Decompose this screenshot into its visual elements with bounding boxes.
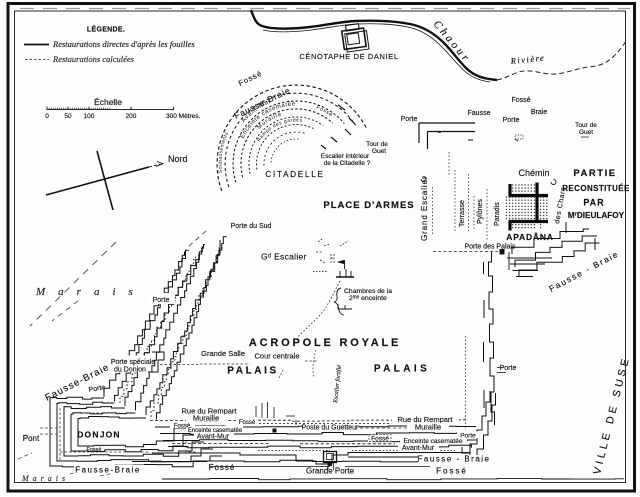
- svg-text:Restaurations directes d'après: Restaurations directes d'après les fouil…: [52, 39, 195, 49]
- svg-text:Pont: Pont: [23, 434, 40, 443]
- svg-text:Terrasse: Terrasse: [459, 200, 466, 227]
- svg-text:PALAIS: PALAIS: [374, 364, 430, 375]
- svg-text:Fossé: Fossé: [239, 420, 256, 426]
- svg-text:Grande Salle: Grande Salle: [201, 349, 245, 358]
- svg-text:PAR: PAR: [583, 198, 604, 208]
- svg-text:Porte: Porte: [503, 117, 520, 124]
- svg-text:Porte: Porte: [153, 297, 170, 304]
- svg-text:200: 200: [126, 113, 137, 120]
- svg-text:Avant-Mur: Avant-Mur: [197, 434, 230, 441]
- svg-text:ACROPOLE ROYALE: ACROPOLE ROYALE: [249, 337, 401, 349]
- svg-text:Marais: Marais: [35, 286, 146, 298]
- svg-text:CITADELLE: CITADELLE: [265, 170, 324, 179]
- svg-text:Muraille: Muraille: [193, 414, 219, 423]
- svg-text:100: 100: [84, 113, 95, 120]
- svg-text:Muraille: Muraille: [415, 423, 441, 432]
- svg-text:Fossé: Fossé: [87, 447, 102, 453]
- svg-text:Guet: Guet: [372, 148, 386, 155]
- svg-text:Guet: Guet: [579, 129, 593, 136]
- svg-text:RECONSTITUÉE: RECONSTITUÉE: [562, 184, 630, 193]
- svg-text:Cour centrale: Cour centrale: [254, 352, 299, 361]
- svg-text:Fossé: Fossé: [511, 97, 530, 104]
- svg-text:50: 50: [64, 113, 72, 120]
- svg-text:Poste du Guetteur: Poste du Guetteur: [302, 425, 359, 432]
- svg-text:Fossé: Fossé: [436, 467, 468, 476]
- svg-text:Avant-Mur: Avant-Mur: [402, 445, 435, 452]
- svg-text:Gᵈ Escalier: Gᵈ Escalier: [261, 252, 307, 262]
- svg-text:Tour de: Tour de: [575, 122, 597, 129]
- svg-text:PLACE D'ARMES: PLACE D'ARMES: [323, 200, 414, 211]
- svg-text:Porte du Sud: Porte du Sud: [231, 223, 272, 230]
- svg-text:Restaurations calculées: Restaurations calculées: [52, 54, 135, 64]
- svg-text:Paradis: Paradis: [494, 202, 501, 226]
- svg-text:Chémin: Chémin: [518, 168, 549, 178]
- svg-text:Fausse: Fausse: [468, 110, 491, 117]
- svg-text:du Donjon: du Donjon: [114, 367, 146, 374]
- svg-text:Tour de: Tour de: [366, 141, 388, 148]
- svg-text:Nord: Nord: [168, 154, 188, 164]
- svg-text:APADÂNA: APADÂNA: [506, 231, 553, 242]
- svg-text:2ᵐᵉ enceinte: 2ᵐᵉ enceinte: [349, 295, 387, 302]
- svg-text:Pylônes: Pylônes: [477, 199, 484, 224]
- svg-text:Porte: Porte: [500, 365, 517, 372]
- svg-text:0: 0: [45, 113, 49, 120]
- svg-text:PALAIS: PALAIS: [227, 366, 279, 377]
- svg-text:Porte: Porte: [460, 433, 476, 440]
- svg-text:Fossé: Fossé: [209, 463, 236, 472]
- svg-text:LÉGENDE.: LÉGENDE.: [87, 25, 125, 34]
- svg-text:Marais: Marais: [21, 474, 69, 483]
- svg-text:CÉNOTAPHE DE DANIEL: CÉNOTAPHE DE DANIEL: [299, 52, 398, 61]
- svg-text:Fausse-Braie: Fausse-Braie: [75, 466, 141, 475]
- svg-text:DONJON: DONJON: [77, 430, 121, 440]
- svg-text:de la Citadelle ?: de la Citadelle ?: [324, 160, 371, 167]
- svg-text:Grande Porte: Grande Porte: [306, 467, 355, 476]
- svg-text:Porte des Palais: Porte des Palais: [465, 244, 516, 251]
- svg-text:Porte spéciale: Porte spéciale: [111, 359, 155, 366]
- svg-text:Chambres de la: Chambres de la: [344, 288, 392, 295]
- svg-text:MrDIEULAFOY: MrDIEULAFOY: [568, 211, 625, 220]
- svg-text:Grand Escalier: Grand Escalier: [420, 175, 429, 241]
- svg-text:300 Mètres.: 300 Mètres.: [166, 113, 201, 120]
- svg-text:PARTIE: PARTIE: [573, 168, 616, 179]
- svg-text:Braie: Braie: [531, 109, 547, 116]
- svg-text:Porte: Porte: [401, 116, 418, 123]
- svg-text:Fausse - Braie: Fausse - Braie: [417, 455, 490, 464]
- svg-text:Escalier intérieur: Escalier intérieur: [321, 153, 370, 160]
- svg-text:Échelle: Échelle: [94, 97, 122, 107]
